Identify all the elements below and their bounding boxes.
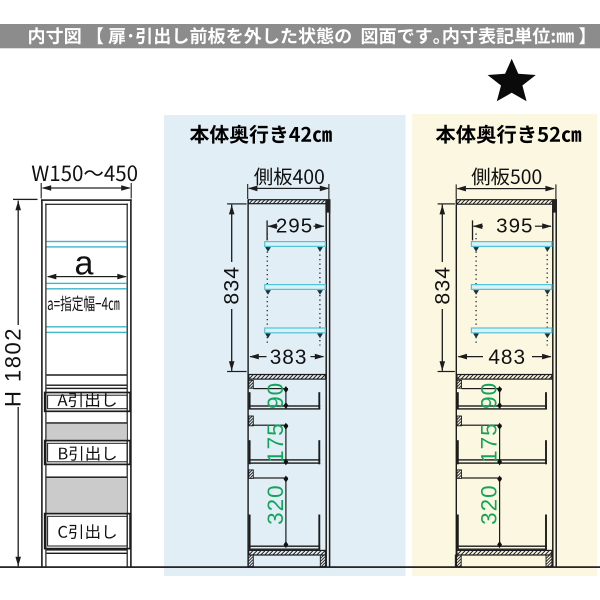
svg-text:320: 320 xyxy=(477,484,502,525)
svg-text:H 1802: H 1802 xyxy=(0,327,25,407)
svg-text:90: 90 xyxy=(477,382,502,409)
svg-text:383: 383 xyxy=(270,346,308,369)
svg-text:834: 834 xyxy=(430,266,454,305)
svg-text:395: 395 xyxy=(496,215,533,238)
svg-text:483: 483 xyxy=(488,346,526,369)
svg-text:834: 834 xyxy=(220,266,244,305)
svg-text:175: 175 xyxy=(263,422,288,463)
svg-text:90: 90 xyxy=(263,382,288,409)
svg-text:175: 175 xyxy=(477,422,502,463)
svg-text:295: 295 xyxy=(276,215,313,238)
svg-text:320: 320 xyxy=(263,484,288,525)
